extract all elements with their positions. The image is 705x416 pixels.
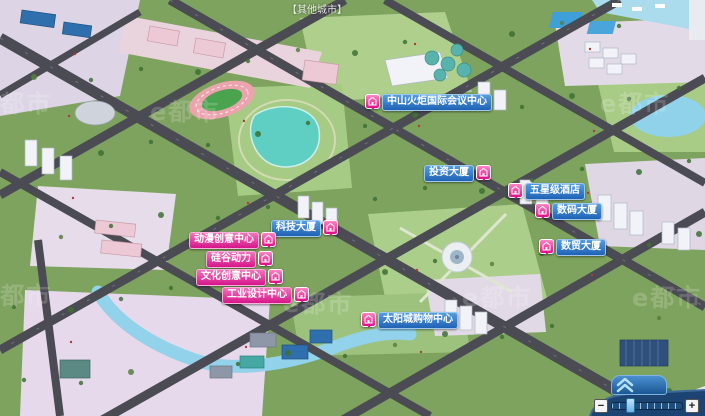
building-marker-icon bbox=[539, 239, 554, 254]
poi-label-text: 中山火炬国际会议中心 bbox=[382, 94, 492, 111]
poi-label-text: 科技大厦 bbox=[271, 220, 321, 237]
poi-label-text: 工业设计中心 bbox=[222, 287, 292, 304]
building-marker-icon bbox=[258, 251, 273, 266]
poi-label-text: 文化创意中心 bbox=[196, 269, 266, 286]
building-marker-icon bbox=[294, 287, 309, 302]
building-marker-icon bbox=[268, 269, 283, 284]
poi-label-text: 数码大厦 bbox=[552, 203, 602, 220]
map-viewport: 【其他城市】 e都市 e都市 e都市 e都市 e都市 e都市 e都市 中山火炬国… bbox=[0, 0, 705, 416]
poi-label-text: 投资大厦 bbox=[424, 165, 474, 182]
building-marker-icon bbox=[323, 220, 338, 235]
other-cities-watermark: 【其他城市】 bbox=[287, 1, 347, 16]
zoom-in-button[interactable]: + bbox=[685, 399, 699, 413]
zoom-out-button[interactable]: − bbox=[594, 399, 608, 413]
poi-label-five-star-hotel[interactable]: 五星级酒店 bbox=[508, 183, 585, 200]
poi-label-text: 硅谷动力 bbox=[206, 251, 256, 268]
zoom-slider-thumb[interactable] bbox=[626, 398, 635, 413]
building-marker-icon bbox=[365, 94, 380, 109]
building-marker-icon bbox=[535, 203, 550, 218]
poi-label-animation-creative-center[interactable]: 动漫创意中心 bbox=[189, 232, 276, 249]
poi-label-investment-building[interactable]: 投资大厦 bbox=[424, 165, 491, 182]
building-marker-icon bbox=[261, 232, 276, 247]
collapse-panel-button[interactable] bbox=[611, 375, 667, 395]
poi-label-industrial-design-center[interactable]: 工业设计中心 bbox=[222, 287, 309, 304]
double-chevron-up-icon bbox=[612, 376, 638, 393]
poi-label-silicon-valley-power[interactable]: 硅谷动力 bbox=[206, 251, 273, 268]
poi-label-text: 太阳城购物中心 bbox=[378, 312, 458, 329]
building-marker-icon bbox=[508, 183, 523, 198]
building-marker-icon bbox=[361, 312, 376, 327]
poi-label-text: 数贸大厦 bbox=[556, 239, 606, 256]
map-nav-widget: − + bbox=[588, 370, 705, 416]
poi-label-digital-building[interactable]: 数码大厦 bbox=[535, 203, 602, 220]
poi-label-sun-city-shopping-center[interactable]: 太阳城购物中心 bbox=[361, 312, 458, 329]
building-marker-icon bbox=[476, 165, 491, 180]
poi-label-cultural-creative-center[interactable]: 文化创意中心 bbox=[196, 269, 283, 286]
poi-label-digital-trade-building[interactable]: 数贸大厦 bbox=[539, 239, 606, 256]
poi-label-text: 五星级酒店 bbox=[525, 183, 585, 200]
zoom-slider-track[interactable] bbox=[611, 402, 683, 410]
poi-label-text: 动漫创意中心 bbox=[189, 232, 259, 249]
poi-label-technology-building[interactable]: 科技大厦 bbox=[271, 220, 338, 237]
poi-label-convention-center[interactable]: 中山火炬国际会议中心 bbox=[365, 94, 492, 111]
